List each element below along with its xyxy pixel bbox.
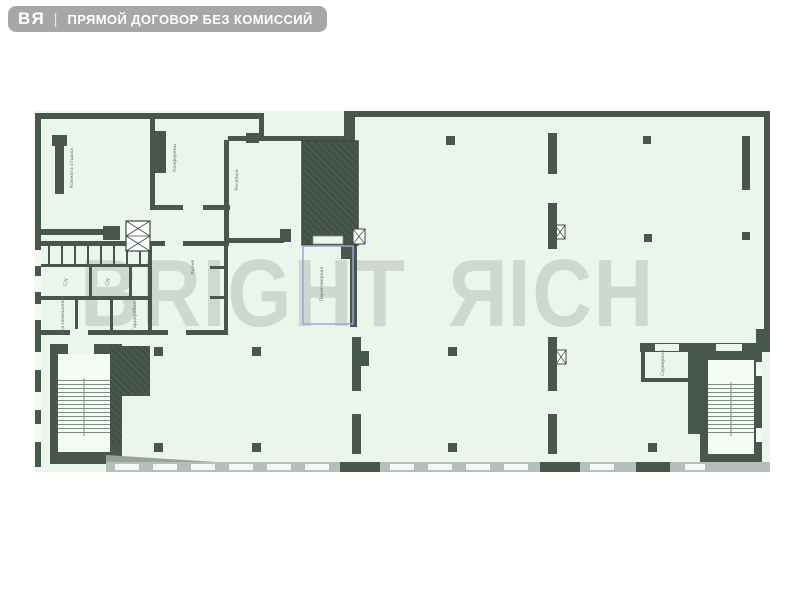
room-label-lounge: Комната отдыха	[69, 148, 75, 188]
window-band	[106, 455, 770, 472]
elevator-icon	[556, 350, 566, 364]
room-label-kitchen: Кухня	[190, 260, 196, 275]
room-label-server: Серверная	[660, 350, 666, 376]
room-label-meeting: Переговорная	[319, 267, 325, 301]
staircase-right	[640, 343, 770, 464]
elevator-shaft-icon	[126, 221, 150, 251]
columns	[154, 133, 750, 454]
outer-walls	[35, 111, 770, 467]
room-label-conference: Конференц	[172, 144, 178, 172]
room-label-wc2: С/у	[105, 278, 111, 286]
room-label-reception: Ресепшн	[234, 169, 240, 190]
floor-plan: Комната отдыха Конференц Ресепшн Кухня П…	[0, 0, 800, 600]
staircase-left	[50, 344, 150, 464]
service-core	[302, 141, 358, 245]
elevator-icon	[353, 229, 365, 244]
room-label-tech: Тех.помещение	[60, 296, 66, 335]
room-label-wardrobe: Гардеробная	[132, 299, 138, 331]
room-label-wc1: С/у	[63, 278, 69, 286]
